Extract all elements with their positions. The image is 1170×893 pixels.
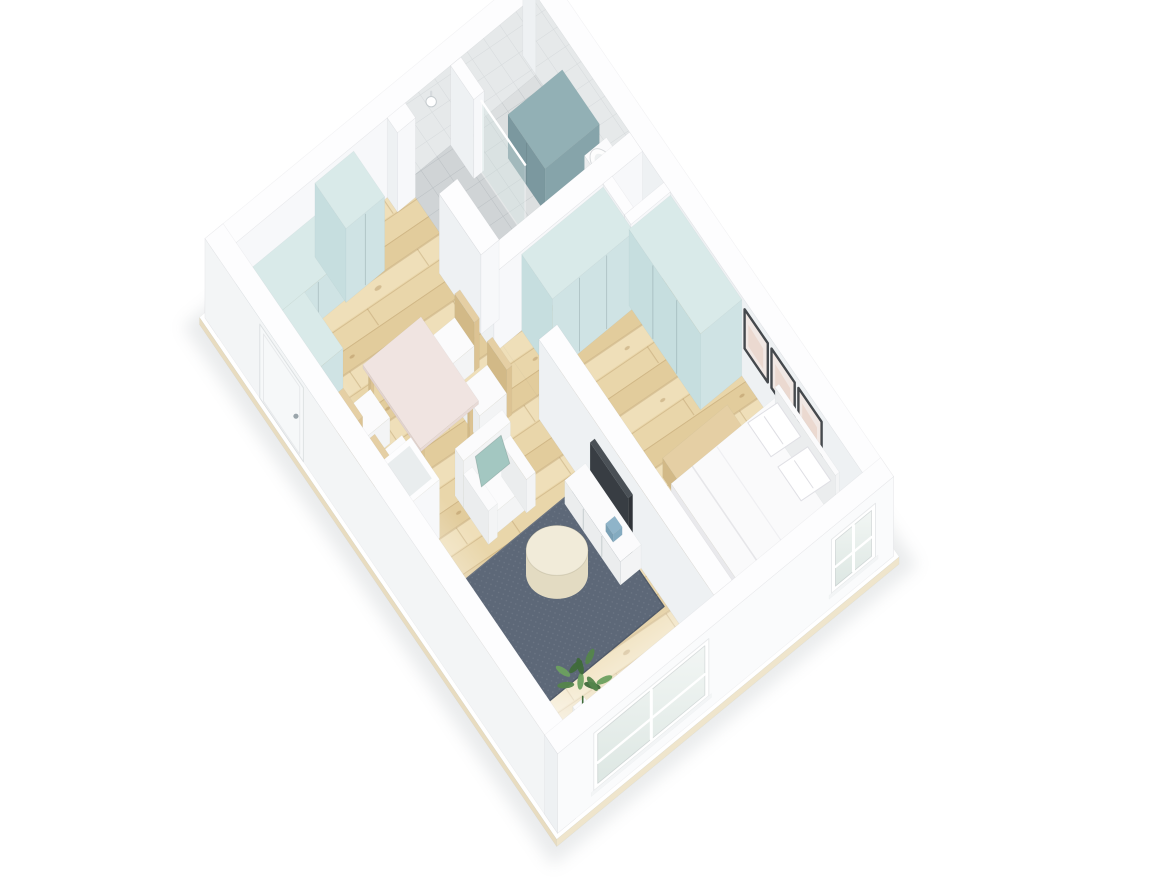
- coffee-table: [526, 525, 588, 599]
- floorplan-canvas: [0, 0, 1170, 893]
- apartment-3d-floorplan: [0, 0, 1170, 893]
- partition-wall-north: [387, 103, 415, 212]
